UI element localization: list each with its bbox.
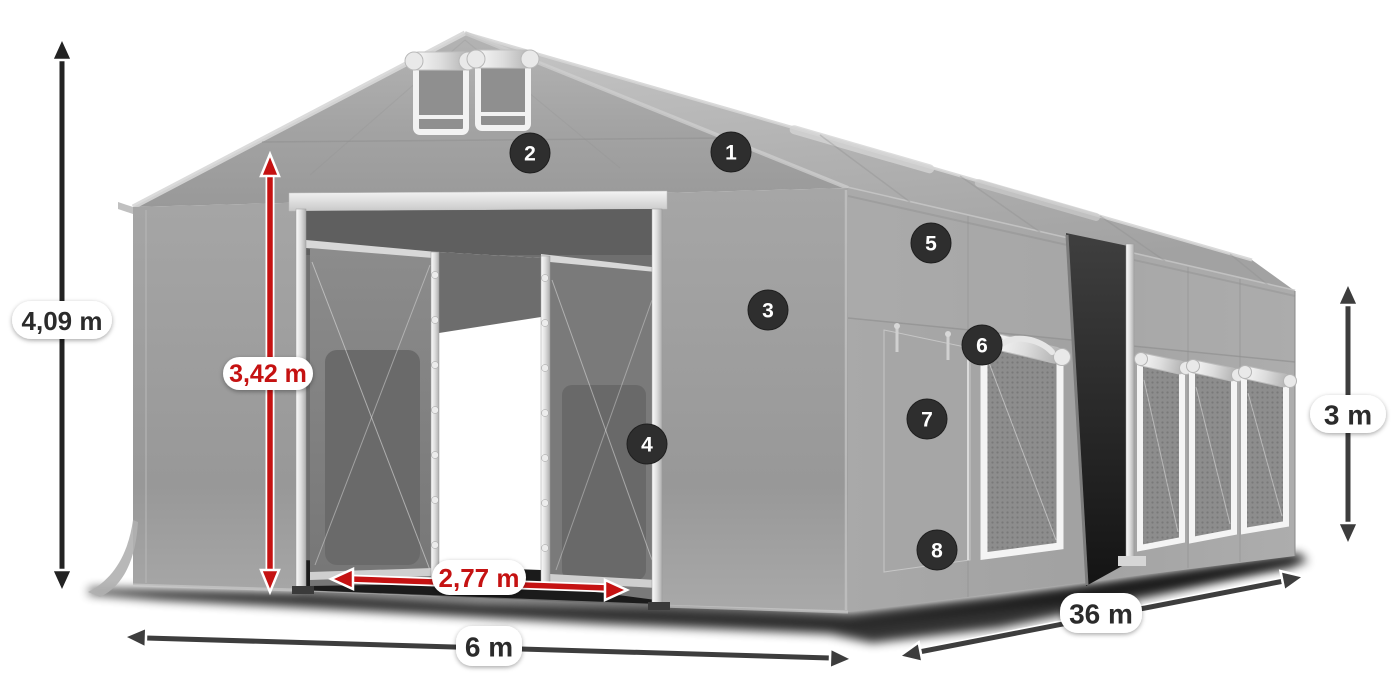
svg-text:3: 3 (762, 300, 774, 323)
dimension-side-height: 3 m (1310, 283, 1386, 545)
interior-left-door-leaf (306, 240, 439, 586)
callout-badge-3[interactable]: 3 (748, 290, 788, 330)
gable-vent-window-left (405, 52, 477, 132)
side-mesh-window-2 (1187, 359, 1245, 540)
callout-badge-8[interactable]: 8 (917, 530, 957, 570)
callout-badge-7[interactable]: 7 (907, 399, 947, 439)
product-diagram-stage: 4,09 m 3,42 m 2,77 m 6 m (0, 0, 1400, 700)
entrance-post-right (652, 209, 662, 608)
callout-badge-1[interactable]: 1 (711, 132, 751, 172)
gable-vent-window-right (467, 50, 539, 128)
svg-text:8: 8 (931, 540, 943, 563)
dimension-total-height: 4,09 m (12, 38, 112, 592)
dimension-side-height-label: 3 m (1324, 400, 1372, 431)
dimension-length-label: 36 m (1069, 599, 1133, 630)
side-mesh-window-3 (1239, 365, 1297, 531)
dimension-width-label: 6 m (465, 632, 513, 663)
dimension-total-height-label: 4,09 m (22, 306, 103, 336)
front-entrance-opening (292, 209, 670, 610)
dimension-entrance-width-label: 2,77 m (439, 563, 520, 593)
entrance-post-left (296, 209, 306, 592)
callout-badge-5[interactable]: 5 (911, 223, 951, 263)
callout-badge-6[interactable]: 6 (962, 325, 1002, 365)
svg-text:1: 1 (725, 142, 737, 165)
callout-badge-2[interactable]: 2 (510, 133, 550, 173)
entrance-lintel-beam (289, 191, 667, 211)
side-mesh-window-1 (1135, 352, 1193, 548)
svg-text:6: 6 (976, 335, 988, 358)
callout-badge-4[interactable]: 4 (627, 424, 667, 464)
dimension-width: 6 m (124, 626, 853, 669)
side-mesh-window-front (984, 332, 1071, 556)
svg-text:2: 2 (524, 143, 536, 166)
dimension-entrance-height-label: 3,42 m (229, 360, 307, 388)
svg-text:4: 4 (641, 434, 653, 457)
svg-text:5: 5 (925, 233, 937, 256)
svg-text:7: 7 (921, 409, 933, 432)
tent-dimension-diagram: 4,09 m 3,42 m 2,77 m 6 m (0, 0, 1400, 700)
